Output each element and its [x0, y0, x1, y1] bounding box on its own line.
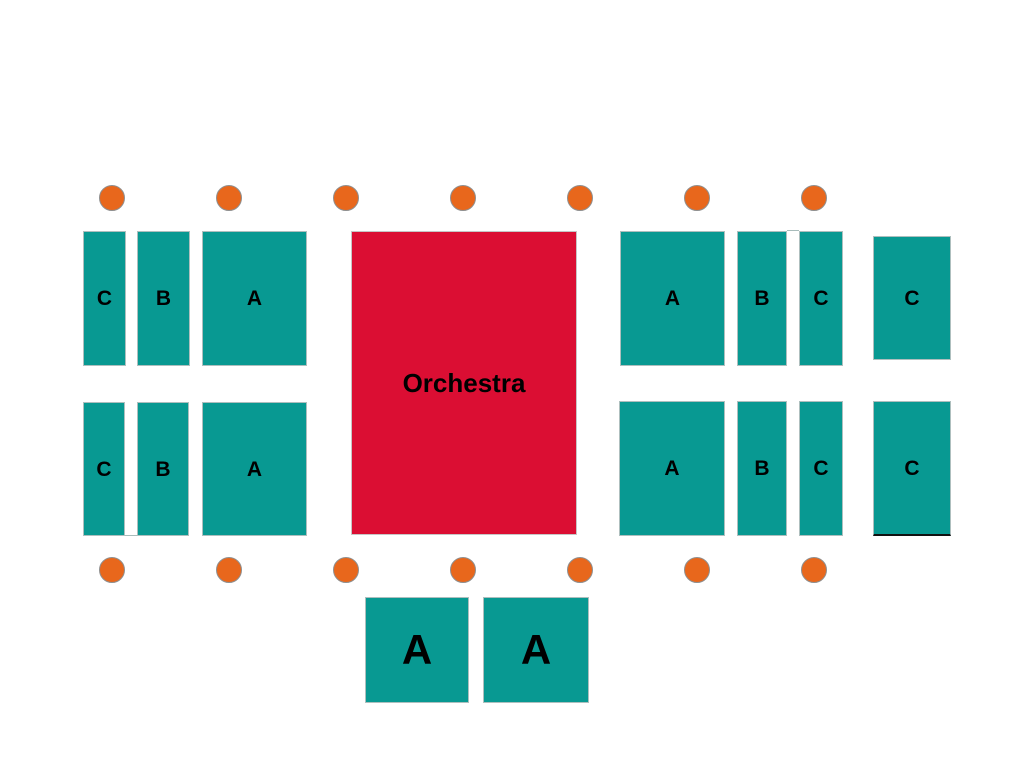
seat-section-far-right-upper-c[interactable]: C	[873, 236, 951, 360]
seat-section-bottom-right-a[interactable]: A	[483, 597, 589, 703]
seat-section-right-lower-b[interactable]: B	[737, 401, 787, 536]
pillar-dot	[333, 557, 359, 583]
pillar-dot	[567, 557, 593, 583]
seat-section-label: A	[247, 288, 262, 309]
pillar-dot	[450, 557, 476, 583]
seat-section-label: C	[904, 458, 919, 479]
pillar-dot	[216, 185, 242, 211]
pillar-dot	[567, 185, 593, 211]
seat-section-label: B	[754, 288, 769, 309]
seat-section-label: A	[665, 288, 680, 309]
pillar-dot	[450, 185, 476, 211]
seat-section-left-lower-a[interactable]: A	[202, 402, 307, 536]
border-line-left-lower-cb-gap-bottom	[125, 535, 137, 536]
pillar-dot	[99, 557, 125, 583]
pillar-dot	[99, 185, 125, 211]
seat-section-left-lower-c[interactable]: C	[83, 402, 125, 536]
seat-section-label: B	[156, 288, 171, 309]
seat-section-label: A	[664, 458, 679, 479]
pillar-dot	[216, 557, 242, 583]
orchestra-stage-section[interactable]: Orchestra	[351, 231, 577, 535]
seat-section-left-upper-a[interactable]: A	[202, 231, 307, 366]
seat-section-label: B	[155, 459, 170, 480]
seat-section-right-lower-a[interactable]: A	[619, 401, 725, 536]
seat-section-left-upper-b[interactable]: B	[137, 231, 190, 366]
seat-section-label: C	[904, 288, 919, 309]
seat-section-label: A	[402, 629, 432, 671]
venue-seat-map: Orchestra CBACBAABCCABCCAA	[0, 0, 1024, 768]
seat-section-right-upper-a[interactable]: A	[620, 231, 725, 366]
seat-section-far-right-lower-c[interactable]: C	[873, 401, 951, 536]
pillar-dot	[801, 557, 827, 583]
border-line-right-upper-bc-gap-top	[787, 230, 799, 231]
orchestra-stage-label: Orchestra	[403, 370, 526, 396]
seat-section-right-upper-b[interactable]: B	[737, 231, 787, 366]
pillar-dot	[684, 185, 710, 211]
seat-section-label: C	[97, 288, 112, 309]
pillar-dot	[333, 185, 359, 211]
seat-section-label: A	[521, 629, 551, 671]
seat-section-label: C	[813, 458, 828, 479]
seat-section-left-upper-c[interactable]: C	[83, 231, 126, 366]
seat-section-right-upper-c[interactable]: C	[799, 231, 843, 366]
seat-section-label: C	[813, 288, 828, 309]
seat-section-right-lower-c[interactable]: C	[799, 401, 843, 536]
pillar-dot	[684, 557, 710, 583]
pillar-dot	[801, 185, 827, 211]
seat-section-label: C	[96, 459, 111, 480]
seat-section-label: B	[754, 458, 769, 479]
seat-section-left-lower-b[interactable]: B	[137, 402, 189, 536]
seat-section-label: A	[247, 459, 262, 480]
seat-section-bottom-left-a[interactable]: A	[365, 597, 469, 703]
